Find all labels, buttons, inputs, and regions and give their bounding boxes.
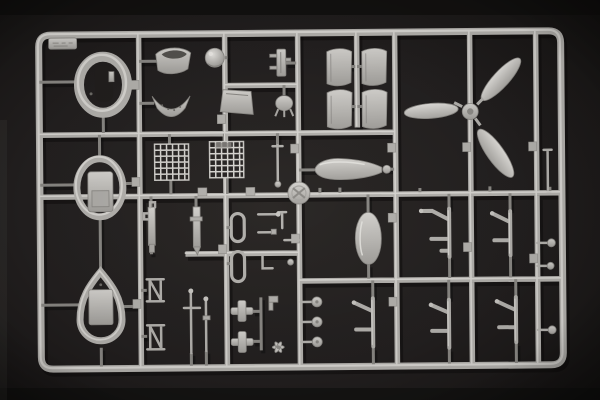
sprue-photo (0, 0, 600, 400)
sprue-photo-canvas (0, 0, 600, 400)
photo-vignette (0, 0, 600, 400)
